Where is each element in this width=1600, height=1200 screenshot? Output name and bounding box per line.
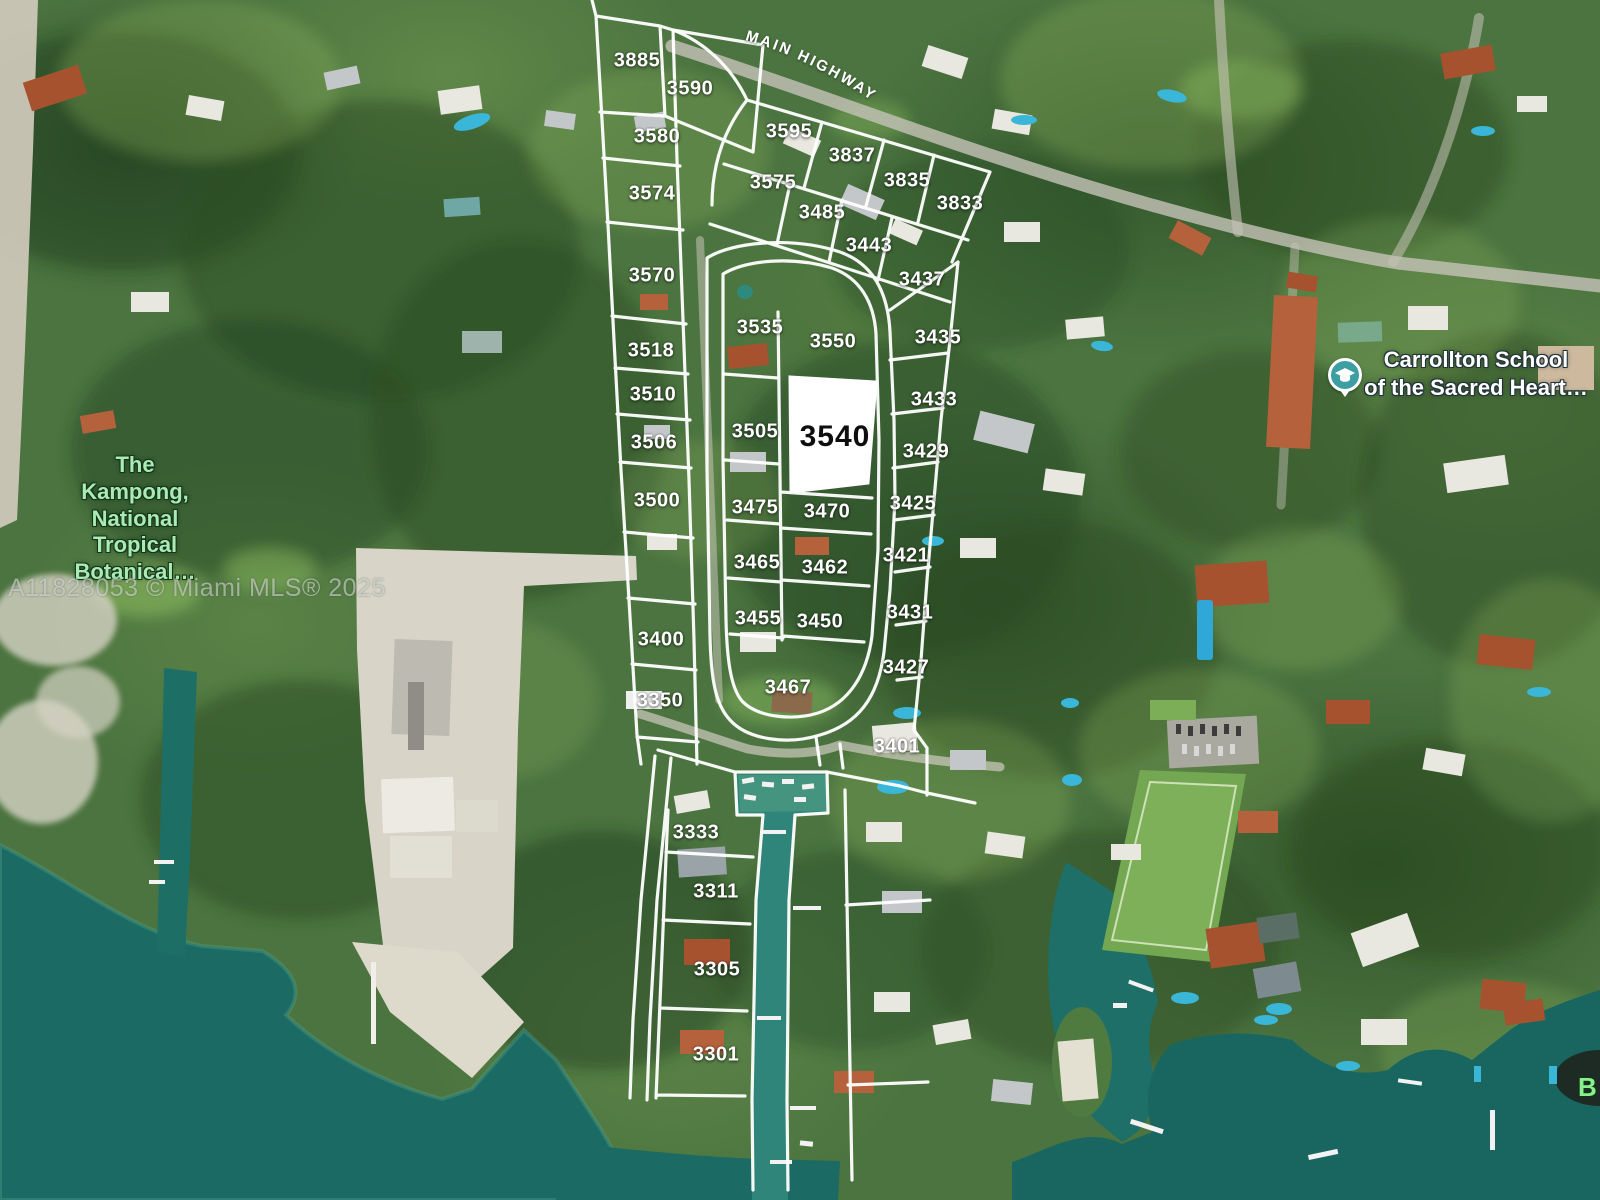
lot-label-3421: 3421	[883, 545, 930, 568]
lot-label-3450: 3450	[797, 611, 844, 634]
lot-label-3433: 3433	[911, 389, 958, 412]
lot-label-3401: 3401	[874, 736, 921, 759]
lot-label-3333: 3333	[673, 822, 720, 845]
lot-label-3475: 3475	[732, 497, 779, 520]
lot-label-3427: 3427	[883, 657, 930, 680]
lot-label-3455: 3455	[735, 608, 782, 631]
lot-label-3590: 3590	[667, 78, 714, 101]
lot-label-3574: 3574	[629, 183, 676, 206]
lot-label-3540: 3540	[800, 420, 871, 454]
school-label-line2: of the Sacred Heart…	[1358, 374, 1594, 402]
lot-label-3505: 3505	[732, 421, 779, 444]
poi-label-kampong: The Kampong, National Tropical Botanical…	[59, 452, 211, 586]
lot-label-3467: 3467	[765, 677, 812, 700]
school-label-line1: Carrollton School	[1358, 346, 1594, 374]
lot-label-3506: 3506	[631, 432, 678, 455]
lot-label-3595: 3595	[766, 121, 813, 144]
graduation-cap-icon	[1333, 363, 1357, 387]
lot-label-3837: 3837	[829, 145, 876, 168]
lot-label-3518: 3518	[628, 340, 675, 363]
lot-label-3400: 3400	[638, 629, 685, 652]
lot-label-3550: 3550	[810, 331, 857, 354]
lot-label-3833: 3833	[937, 193, 984, 216]
lot-label-3443: 3443	[846, 235, 893, 258]
lot-label-3425: 3425	[890, 493, 937, 516]
lot-label-3470: 3470	[804, 501, 851, 524]
lot-label-3311: 3311	[693, 881, 738, 904]
lot-label-3485: 3485	[799, 202, 846, 225]
lot-label-3462: 3462	[802, 557, 849, 580]
lot-label-3580: 3580	[634, 126, 681, 149]
lot-label-3429: 3429	[903, 441, 950, 464]
lot-label-3575: 3575	[750, 172, 797, 195]
lot-label-3350: 3350	[637, 690, 684, 713]
lot-label-3510: 3510	[630, 384, 677, 407]
lot-label-3305: 3305	[694, 959, 741, 982]
school-pin-tip	[1340, 390, 1350, 397]
lot-label-3570: 3570	[629, 265, 676, 288]
mls-satellite-photo: MAIN HIGHWAY 388535903595358038373835357…	[0, 0, 1600, 1200]
lot-label-3465: 3465	[734, 552, 781, 575]
lot-label-3835: 3835	[884, 170, 931, 193]
lot-label-3885: 3885	[614, 50, 661, 73]
lot-label-3431: 3431	[887, 602, 934, 625]
mls-watermark: A11828053 © Miami MLS® 2025	[8, 574, 386, 603]
poi-label-truncated-b: B	[1578, 1072, 1597, 1103]
lot-label-3435: 3435	[915, 327, 962, 350]
lot-label-3301: 3301	[693, 1044, 740, 1067]
school-pin-icon	[1328, 358, 1360, 398]
lot-label-3500: 3500	[634, 490, 681, 513]
lot-label-3437: 3437	[899, 269, 946, 292]
lot-label-3535: 3535	[737, 317, 784, 340]
poi-label-carrollton-school: Carrollton School of the Sacred Heart…	[1358, 346, 1594, 401]
